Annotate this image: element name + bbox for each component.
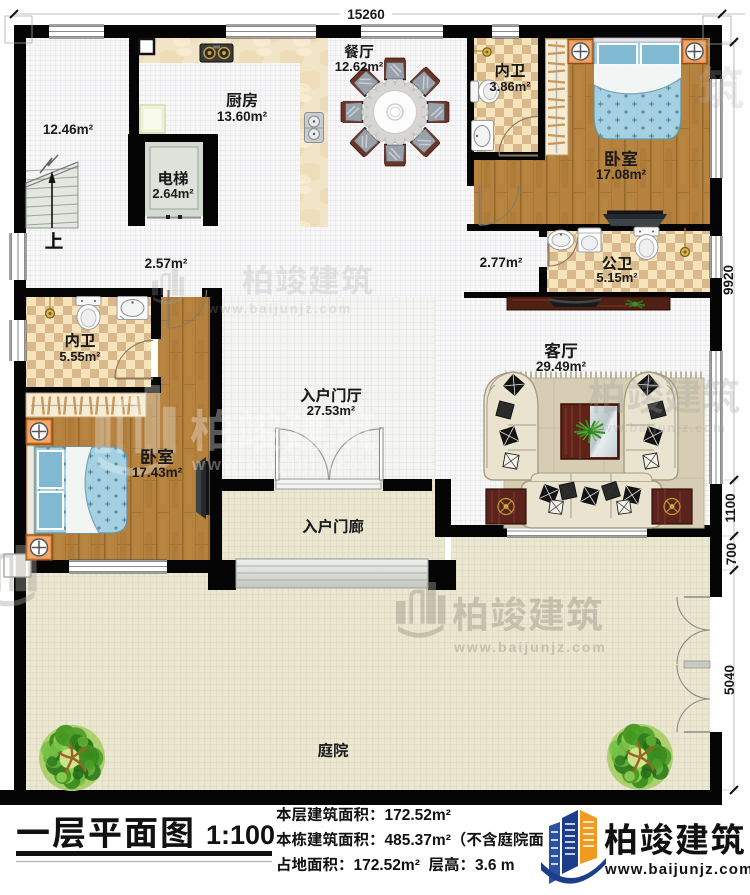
svg-text:172.52m²: 172.52m² — [354, 857, 420, 874]
svg-text:17.43m²: 17.43m² — [132, 465, 183, 480]
svg-text:17.08m²: 17.08m² — [596, 167, 647, 182]
svg-text:3.86m²: 3.86m² — [489, 79, 531, 94]
svg-text:www.baijunjz.com: www.baijunjz.com — [207, 301, 352, 316]
svg-text:15260: 15260 — [347, 7, 385, 22]
svg-text:29.49m²: 29.49m² — [536, 359, 587, 374]
svg-text:2.64m²: 2.64m² — [152, 186, 194, 201]
svg-text:3.6 m: 3.6 m — [475, 857, 515, 874]
svg-text:5040: 5040 — [722, 665, 737, 695]
svg-text:12.62m²: 12.62m² — [335, 59, 384, 74]
svg-text:700: 700 — [724, 543, 739, 566]
svg-text:2.77m²: 2.77m² — [480, 255, 523, 270]
svg-text:9920: 9920 — [721, 265, 736, 295]
svg-text:172.52m²: 172.52m² — [385, 807, 451, 824]
svg-text:www.baijunjz.com: www.baijunjz.com — [191, 455, 379, 474]
svg-text:5.15m²: 5.15m² — [596, 270, 638, 285]
svg-text:13.60m²: 13.60m² — [217, 109, 268, 124]
svg-text:5.55m²: 5.55m² — [59, 349, 101, 364]
svg-text:1100: 1100 — [723, 493, 738, 522]
svg-text:12.46m²: 12.46m² — [43, 122, 94, 137]
svg-text:27.53m²: 27.53m² — [307, 403, 356, 418]
svg-text:www.baijunjz.com: www.baijunjz.com — [589, 420, 726, 435]
svg-text:www.baijunjz.com: www.baijunjz.com — [453, 639, 607, 655]
svg-text:www.baijunjz.com: www.baijunjz.com — [604, 861, 750, 878]
svg-text:485.37m²: 485.37m² — [385, 832, 451, 849]
svg-text:2.57m²: 2.57m² — [145, 256, 188, 271]
svg-text:1:100: 1:100 — [206, 820, 275, 850]
